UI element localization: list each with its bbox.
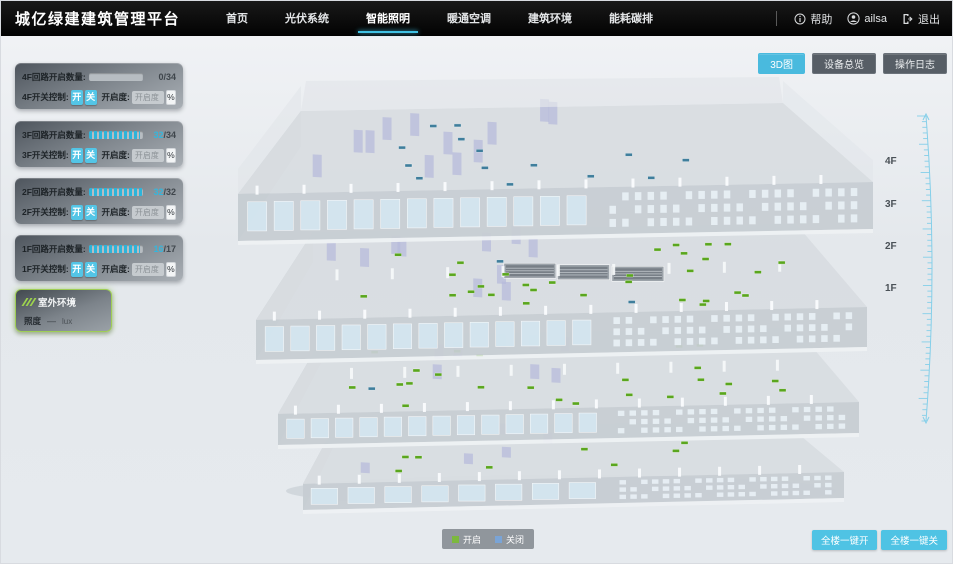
nav-item-energy-carbon[interactable]: 能耗碳排 — [607, 6, 655, 32]
illuminance-label: 照度 — [24, 315, 41, 327]
floor-label-3f[interactable]: 3F — [885, 199, 897, 210]
main-nav: 首页 光伏系统 智能照明 暖通空调 建筑环境 能耗碳排 — [224, 6, 655, 32]
circuit-count-label: 3F回路开启数量: — [22, 129, 86, 141]
circuit-progress-bar — [89, 245, 143, 253]
floor-label-4f[interactable]: 4F — [885, 156, 897, 167]
switch-on-button[interactable]: 开 — [71, 90, 83, 105]
floor-label-2f[interactable]: 2F — [885, 241, 897, 252]
user-icon — [847, 12, 860, 25]
view-3d-button[interactable]: 3D图 — [758, 53, 805, 74]
switch-off-button[interactable]: 关 — [85, 148, 97, 163]
page-title: 城亿绿建建筑管理平台 — [1, 8, 180, 29]
nav-item-pv-system[interactable]: 光伏系统 — [283, 6, 331, 32]
circuit-count-value: 32/32 — [153, 187, 176, 197]
device-overview-button[interactable]: 设备总览 — [812, 53, 876, 74]
header-divider — [776, 11, 777, 26]
switch-off-button[interactable]: 关 — [85, 262, 97, 277]
user-menu: 帮助 ailsa 退出 — [776, 11, 952, 27]
floor-panel-1f: 1F回路开启数量: 16/17 1F开关控制: 开 关 开启度: % — [15, 235, 183, 281]
circuit-count-value: 16/17 — [153, 244, 176, 254]
legend-on-swatch — [452, 536, 459, 543]
floor-panel-3f: 3F回路开启数量: 32/34 3F开关控制: 开 关 开启度: % — [15, 121, 183, 167]
bottom-actions: 全楼一键开 全楼一键关 — [812, 530, 947, 550]
top-header: 城亿绿建建筑管理平台 首页 光伏系统 智能照明 暖通空调 建筑环境 能耗碳排 帮… — [1, 1, 952, 36]
dim-level-label: 开启度: — [102, 91, 130, 103]
switch-off-button[interactable]: 关 — [85, 90, 97, 105]
floor-ruler — [917, 114, 932, 423]
circuit-progress-bar — [89, 131, 143, 139]
view-toolbar: 3D图 设备总览 操作日志 — [758, 53, 947, 74]
dim-level-input[interactable] — [132, 263, 164, 276]
all-off-button[interactable]: 全楼一键关 — [881, 530, 947, 550]
switch-on-button[interactable]: 开 — [71, 148, 83, 163]
nav-item-hvac[interactable]: 暖通空调 — [445, 6, 493, 32]
nav-item-smart-lighting[interactable]: 智能照明 — [364, 6, 412, 32]
floor-label-1f[interactable]: 1F — [885, 283, 897, 294]
dim-level-label: 开启度: — [102, 263, 130, 275]
nav-item-building-env[interactable]: 建筑环境 — [526, 6, 574, 32]
circuit-count-label: 4F回路开启数量: — [22, 71, 86, 83]
help-button[interactable]: 帮助 — [794, 11, 832, 27]
floor-panel-2f: 2F回路开启数量: 32/32 2F开关控制: 开 关 开启度: % — [15, 178, 183, 224]
dim-level-input[interactable] — [132, 206, 164, 219]
outdoor-env-icon — [24, 298, 34, 306]
percent-button[interactable]: % — [166, 262, 176, 277]
help-icon — [794, 13, 806, 25]
outdoor-env-panel: 室外环境 照度 — lux — [15, 289, 112, 332]
dim-level-input[interactable] — [132, 149, 164, 162]
dim-level-label: 开启度: — [102, 206, 130, 218]
circuit-count-label: 1F回路开启数量: — [22, 243, 86, 255]
operation-log-button[interactable]: 操作日志 — [883, 53, 947, 74]
circuit-count-label: 2F回路开启数量: — [22, 186, 86, 198]
switch-control-label: 1F开关控制: — [22, 263, 69, 275]
switch-control-label: 3F开关控制: — [22, 149, 69, 161]
switch-control-label: 2F开关控制: — [22, 206, 69, 218]
dim-level-label: 开启度: — [102, 149, 130, 161]
user-account-button[interactable]: ailsa — [847, 12, 887, 25]
percent-button[interactable]: % — [166, 148, 176, 163]
circuit-progress-bar — [89, 188, 143, 196]
legend-item-off: 关闭 — [495, 533, 524, 546]
status-legend: 开启 关闭 — [442, 529, 534, 549]
circuit-count-value: 32/34 — [153, 130, 176, 140]
switch-off-button[interactable]: 关 — [85, 205, 97, 220]
outdoor-env-title: 室外环境 — [38, 295, 76, 309]
switch-on-button[interactable]: 开 — [71, 205, 83, 220]
percent-button[interactable]: % — [166, 205, 176, 220]
logout-button[interactable]: 退出 — [902, 11, 940, 27]
legend-item-on: 开启 — [452, 533, 481, 546]
illuminance-unit: lux — [62, 317, 72, 326]
switch-control-label: 4F开关控制: — [22, 91, 69, 103]
switch-on-button[interactable]: 开 — [71, 262, 83, 277]
dim-level-input[interactable] — [132, 91, 164, 104]
all-on-button[interactable]: 全楼一键开 — [812, 530, 878, 550]
illuminance-value: — — [47, 316, 56, 326]
nav-item-home[interactable]: 首页 — [224, 6, 250, 32]
app-window: 城亿绿建建筑管理平台 首页 光伏系统 智能照明 暖通空调 建筑环境 能耗碳排 帮… — [0, 0, 953, 564]
circuit-count-value: 0/34 — [158, 72, 176, 82]
circuit-progress-bar — [89, 73, 143, 81]
legend-off-swatch — [495, 536, 502, 543]
percent-button[interactable]: % — [166, 90, 176, 105]
floor-panel-4f: 4F回路开启数量: 0/34 4F开关控制: 开 关 开启度: % — [15, 63, 183, 109]
logout-icon — [902, 13, 914, 25]
building-3d-view[interactable] — [1, 36, 953, 564]
